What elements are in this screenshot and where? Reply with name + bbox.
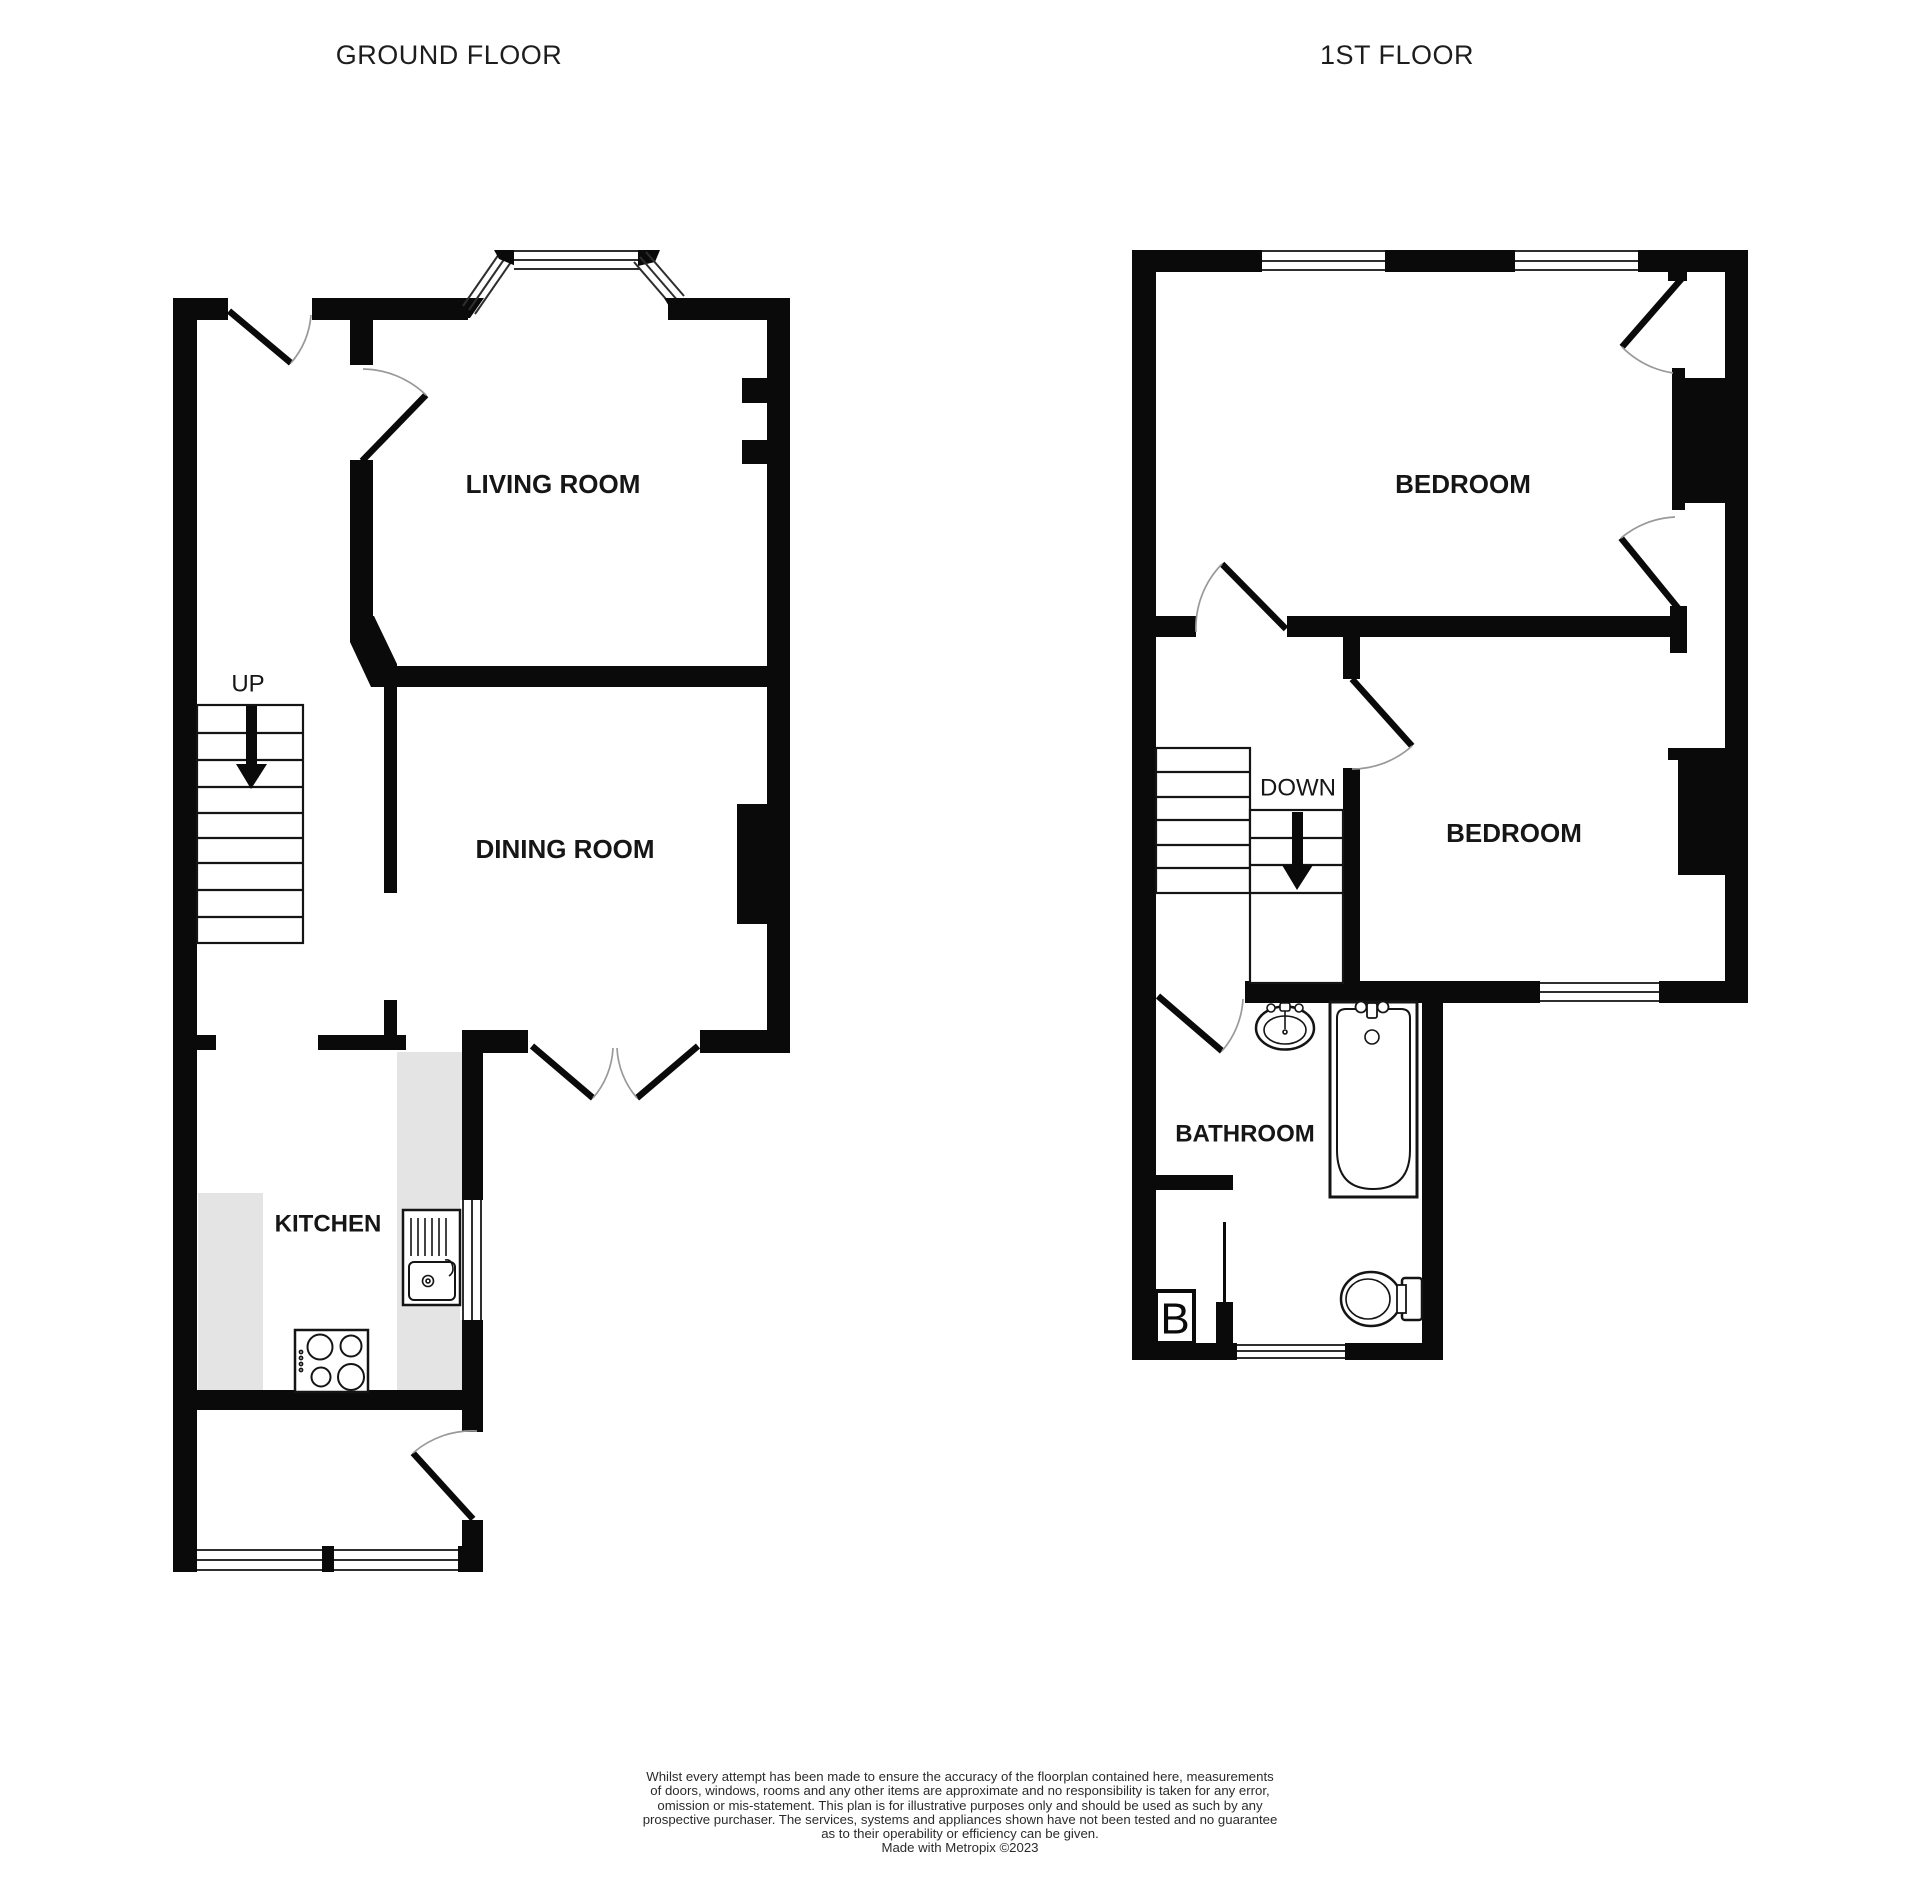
disclaimer-line: as to their operability or efficiency ca… [0,1827,1920,1841]
boiler-label: B [1160,1295,1189,1344]
disclaimer-line: omission or mis-statement. This plan is … [0,1799,1920,1813]
stairs-up-label: UP [231,671,264,698]
kitchen-window [460,1200,485,1320]
disclaimer-line: Whilst every attempt has been made to en… [0,1770,1920,1784]
kitchen-sink-unit [403,1210,460,1305]
bedroom-back-window [1540,981,1659,1003]
living-room-wall-blocks [742,378,767,464]
bedroom-front-label: BEDROOM [1395,469,1531,499]
kitchen-hob [295,1330,368,1392]
entrance-door [229,311,311,363]
kitchen-label: KITCHEN [275,1211,382,1238]
living-room-label: LIVING ROOM [466,469,641,499]
up-arrow-shaft [246,706,257,766]
down-arrow-shaft [1292,812,1303,867]
metropix-credit: Made with Metropix ©2023 [0,1841,1920,1855]
bedroom-back-door [1352,679,1412,769]
bathroom-bathtub [1330,1002,1417,1198]
bathroom-door [1158,996,1243,1051]
first-floor-plan: B DOWN BEDROOM BEDROOM BATHROOM [1132,250,1748,1360]
disclaimer-line: of doors, windows, rooms and any other i… [0,1784,1920,1798]
porch-window [197,1546,458,1572]
stairs-down-label: DOWN [1260,775,1336,802]
living-room-door [362,369,426,461]
bathroom-window [1237,1343,1345,1360]
ground-floor-plan: UP LIVING ROOM DINING ROOM KITCHEN [173,250,790,1572]
staircase-up [197,705,303,943]
bathroom-toilet [1341,1272,1422,1326]
floorplan-drawing: UP LIVING ROOM DINING ROOM KITCHEN [0,0,1920,1898]
disclaimer: Whilst every attempt has been made to en… [0,1770,1920,1856]
porch-door [413,1431,477,1519]
bedroom-back-label: BEDROOM [1446,818,1582,848]
bedroom-front-door-lower [1621,517,1678,608]
boiler-box: B [1156,1291,1194,1344]
dining-chimney-breast [737,804,767,924]
dining-french-doors [532,1046,698,1098]
landing-bedroom-door [1196,564,1286,632]
bay-window [462,250,690,318]
dining-room-label: DINING ROOM [475,834,654,864]
bathroom-basin [1256,1003,1314,1050]
bathroom-label: BATHROOM [1175,1121,1315,1148]
bedroom-front-door-upper [1622,276,1684,373]
disclaimer-line: prospective purchaser. The services, sys… [0,1813,1920,1827]
